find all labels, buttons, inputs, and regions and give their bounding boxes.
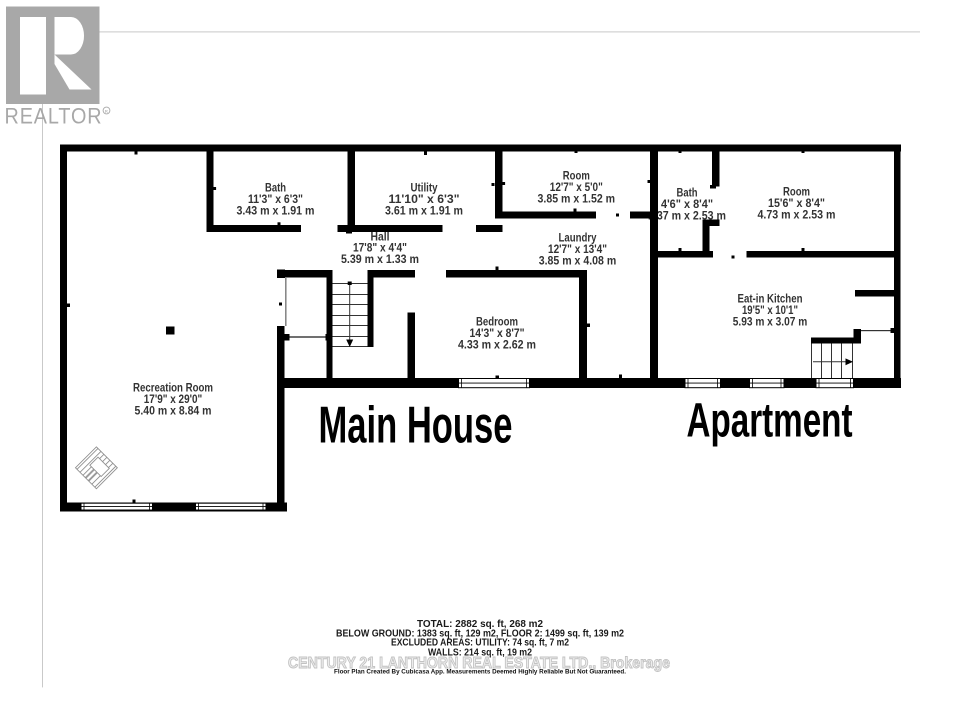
- svg-text:5.39 m x 1.33 m: 5.39 m x 1.33 m: [341, 254, 419, 266]
- svg-text:11'10" x 6'3": 11'10" x 6'3": [389, 194, 460, 206]
- svg-text:19'5" x 10'1": 19'5" x 10'1": [742, 305, 798, 317]
- svg-text:Eat-in Kitchen: Eat-in Kitchen: [738, 293, 803, 305]
- svg-text:Hall: Hall: [371, 231, 390, 243]
- svg-text:Floor Plan Created By Cubicasa: Floor Plan Created By Cubicasa App. Meas…: [334, 668, 626, 675]
- svg-text:11'3" x 6'3": 11'3" x 6'3": [248, 194, 303, 206]
- svg-text:Apartment: Apartment: [687, 395, 853, 448]
- svg-text:Room: Room: [563, 170, 590, 182]
- svg-text:12'7" x 13'4": 12'7" x 13'4": [548, 244, 607, 256]
- svg-text:Main House: Main House: [319, 397, 513, 455]
- svg-text:17'8" x 4'4": 17'8" x 4'4": [353, 243, 407, 255]
- svg-text:4.33 m x 2.62 m: 4.33 m x 2.62 m: [458, 339, 536, 351]
- svg-text:REALTOR: REALTOR: [5, 104, 103, 129]
- svg-text:15'6" x 8'4": 15'6" x 8'4": [768, 198, 825, 210]
- svg-text:4'6" x 8'4": 4'6" x 8'4": [661, 199, 713, 211]
- svg-text:3.61 m x 1.91 m: 3.61 m x 1.91 m: [385, 206, 463, 218]
- svg-text:Recreation Room: Recreation Room: [133, 382, 213, 394]
- svg-text:Bath: Bath: [265, 183, 286, 195]
- svg-text:17'9" x 29'0": 17'9" x 29'0": [144, 394, 203, 406]
- svg-text:Utility: Utility: [411, 183, 439, 195]
- svg-text:4.73 m x 2.53 m: 4.73 m x 2.53 m: [758, 210, 836, 222]
- svg-text:3.85 m x 1.52 m: 3.85 m x 1.52 m: [538, 193, 616, 205]
- svg-text:Room: Room: [783, 187, 810, 199]
- svg-text:Laundry: Laundry: [559, 233, 597, 245]
- svg-text:3.43 m x 1.91 m: 3.43 m x 1.91 m: [237, 206, 315, 218]
- svg-text:3.85 m x 4.08 m: 3.85 m x 4.08 m: [539, 256, 617, 268]
- svg-text:14'3" x 8'7": 14'3" x 8'7": [470, 328, 525, 340]
- svg-text:Bath: Bath: [677, 188, 698, 200]
- svg-text:5.93 m x 3.07 m: 5.93 m x 3.07 m: [733, 316, 808, 328]
- svg-text:5.40 m x 8.84 m: 5.40 m x 8.84 m: [135, 405, 212, 417]
- svg-text:12'7" x 5'0": 12'7" x 5'0": [550, 182, 603, 194]
- svg-text:Bedroom: Bedroom: [476, 316, 518, 328]
